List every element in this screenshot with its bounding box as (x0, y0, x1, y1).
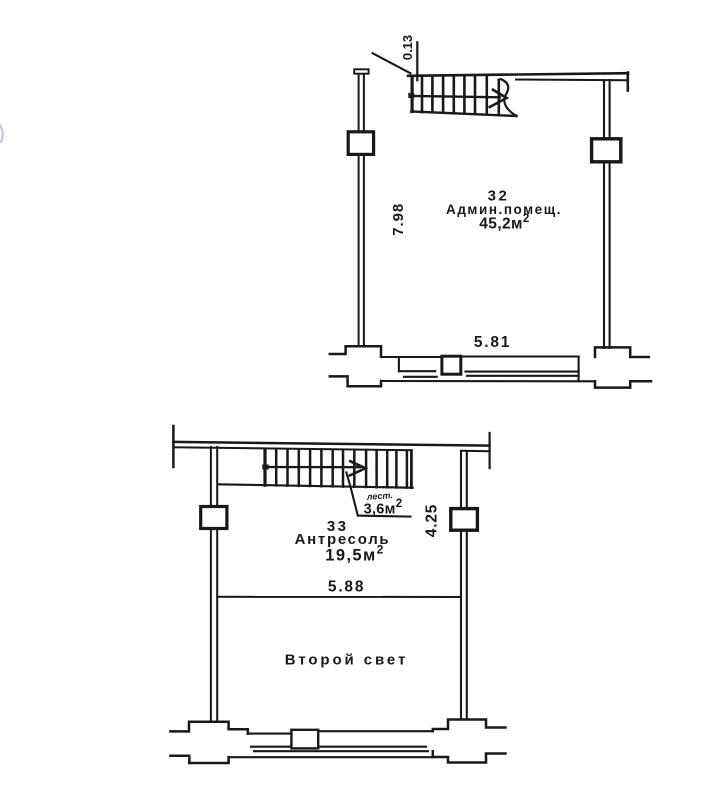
svg-text:Второй свет: Второй свет (285, 652, 408, 669)
svg-text:5.88: 5.88 (328, 578, 365, 595)
svg-text:4.25: 4.25 (424, 504, 441, 537)
svg-text:лест.: лест. (365, 490, 393, 502)
svg-text:7.98: 7.98 (390, 203, 407, 236)
svg-text:3,6м2: 3,6м2 (364, 498, 403, 517)
svg-text:45,2м2: 45,2м2 (479, 213, 529, 232)
svg-text:5.81: 5.81 (474, 334, 511, 351)
svg-text:19,5м2: 19,5м2 (325, 543, 384, 565)
svg-text:0.13: 0.13 (400, 35, 415, 60)
